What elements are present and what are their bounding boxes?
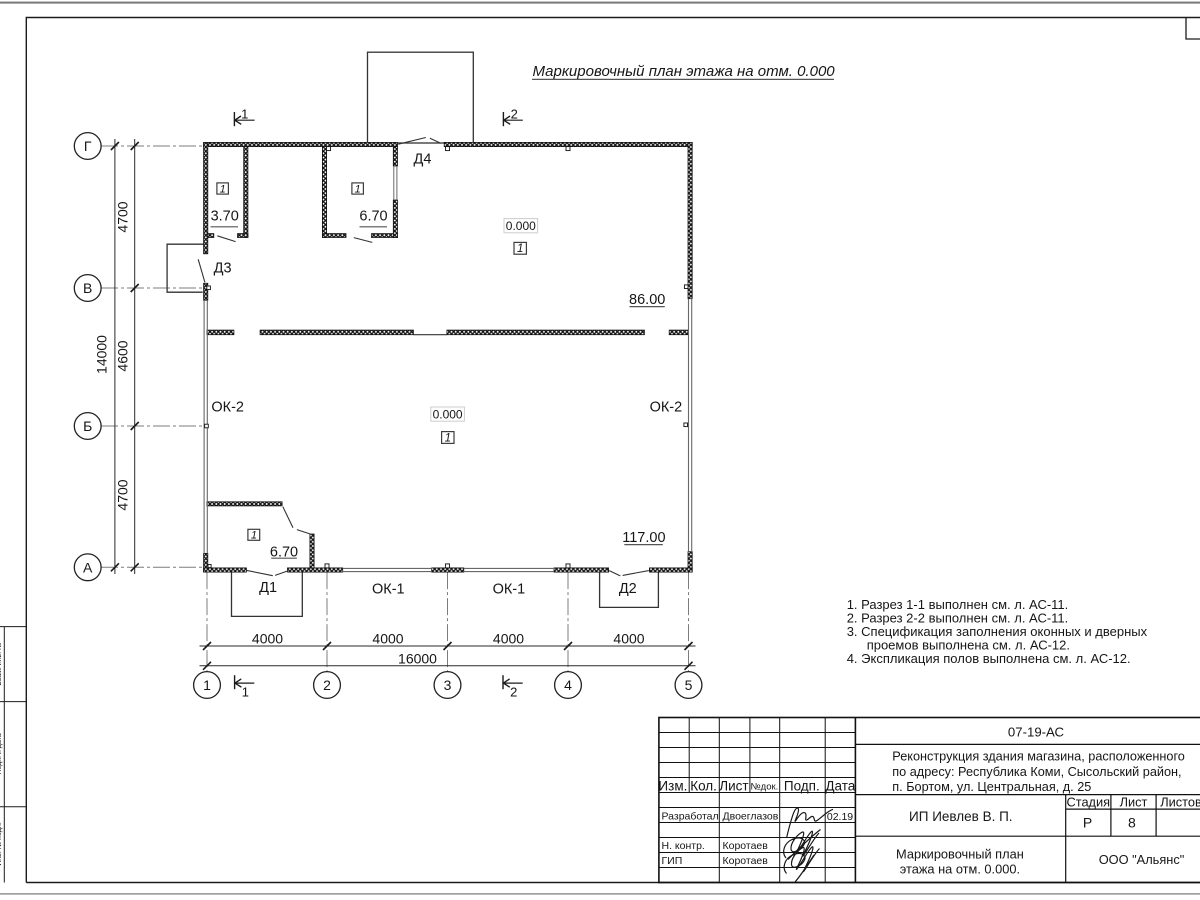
svg-text:№док.: №док. — [750, 782, 778, 793]
svg-text:ОК-2: ОК-2 — [211, 400, 244, 416]
svg-text:2: 2 — [511, 106, 518, 121]
svg-text:Подп. и дата: Подп. и дата — [0, 733, 3, 774]
svg-text:ОК-1: ОК-1 — [493, 581, 526, 597]
svg-text:Реконструкция здания магазина,: Реконструкция здания магазина, расположе… — [892, 750, 1185, 764]
svg-text:Коротаев: Коротаев — [723, 840, 769, 852]
svg-text:п. Бортом, ул. Центральная, д.: п. Бортом, ул. Центральная, д. 25 — [892, 780, 1091, 794]
svg-text:Д4: Д4 — [414, 151, 432, 167]
svg-text:6.70: 6.70 — [359, 209, 387, 225]
svg-text:Д3: Д3 — [214, 260, 232, 276]
svg-text:Н. контр.: Н. контр. — [662, 840, 705, 852]
svg-text:по адресу: Республика Коми, Сы: по адресу: Республика Коми, Сысольский р… — [892, 765, 1181, 779]
svg-text:4000: 4000 — [613, 631, 644, 647]
svg-text:Д1: Д1 — [259, 580, 277, 596]
svg-text:Лист: Лист — [719, 778, 748, 793]
svg-text:5: 5 — [685, 677, 693, 693]
svg-text:0.000: 0.000 — [433, 407, 463, 421]
svg-text:Дата: Дата — [825, 778, 855, 793]
svg-text:Листов: Листов — [1160, 794, 1200, 809]
svg-text:02.19: 02.19 — [827, 811, 853, 823]
svg-text:4700: 4700 — [114, 479, 130, 510]
svg-text:4000: 4000 — [493, 631, 524, 647]
svg-text:ИП Иевлев В. П.: ИП Иевлев В. П. — [909, 809, 1013, 824]
svg-text:Разработал: Разработал — [662, 811, 719, 823]
svg-text:Маркировочный план: Маркировочный план — [896, 847, 1024, 862]
svg-text:ОК-2: ОК-2 — [650, 400, 683, 416]
svg-text:Кол.: Кол. — [690, 778, 717, 793]
svg-text:ООО "Альянс": ООО "Альянс" — [1099, 852, 1185, 867]
svg-text:1: 1 — [220, 183, 226, 195]
svg-text:3.70: 3.70 — [211, 209, 239, 225]
svg-text:Маркировочный план этажа на от: Маркировочный план этажа на отм. 0.000 — [533, 63, 836, 80]
svg-text:1: 1 — [355, 183, 361, 195]
svg-text:4600: 4600 — [114, 340, 130, 371]
svg-text:4000: 4000 — [252, 631, 283, 647]
svg-text:0.000: 0.000 — [506, 219, 536, 233]
svg-text:16000: 16000 — [398, 651, 437, 667]
svg-text:Двоеглазов: Двоеглазов — [723, 811, 779, 823]
svg-text:4: 4 — [564, 677, 572, 693]
svg-text:1: 1 — [251, 530, 257, 542]
svg-text:1: 1 — [203, 677, 211, 693]
svg-text:3: 3 — [444, 677, 452, 693]
svg-text:1: 1 — [241, 106, 248, 121]
svg-text:1: 1 — [517, 243, 523, 255]
svg-text:4000: 4000 — [372, 631, 403, 647]
svg-text:Лист: Лист — [1120, 794, 1148, 809]
svg-text:1: 1 — [445, 432, 451, 444]
svg-text:А: А — [83, 559, 93, 575]
svg-text:1: 1 — [242, 684, 249, 699]
svg-text:Р: Р — [1083, 815, 1092, 831]
svg-text:Стадия: Стадия — [1066, 794, 1110, 809]
svg-text:Коротаев: Коротаев — [723, 855, 769, 867]
svg-text:Б: Б — [83, 418, 92, 434]
svg-text:14000: 14000 — [94, 335, 110, 374]
svg-text:Д2: Д2 — [619, 581, 637, 597]
svg-text:4700: 4700 — [114, 201, 130, 232]
svg-text:8: 8 — [1128, 815, 1136, 831]
svg-text:86.00: 86.00 — [629, 292, 665, 308]
svg-text:Г: Г — [84, 138, 92, 154]
svg-text:07-19-АС: 07-19-АС — [1008, 724, 1065, 739]
svg-text:этажа на отм. 0.000.: этажа на отм. 0.000. — [900, 862, 1020, 877]
svg-text:Инв. № подл.: Инв. № подл. — [0, 822, 3, 866]
svg-text:Взам. инв. №: Взам. инв. № — [0, 642, 3, 685]
svg-text:117.00: 117.00 — [622, 530, 665, 546]
svg-text:ГИП: ГИП — [662, 855, 683, 867]
svg-text:Подп.: Подп. — [784, 778, 820, 793]
svg-text:4. Экспликация полов выполнена: 4. Экспликация полов выполнена см. л. АС… — [847, 651, 1131, 666]
svg-text:2: 2 — [510, 684, 517, 699]
svg-text:2: 2 — [323, 677, 331, 693]
svg-text:Изм.: Изм. — [658, 778, 687, 793]
svg-text:В: В — [83, 280, 92, 296]
svg-text:ОК-1: ОК-1 — [372, 581, 405, 597]
